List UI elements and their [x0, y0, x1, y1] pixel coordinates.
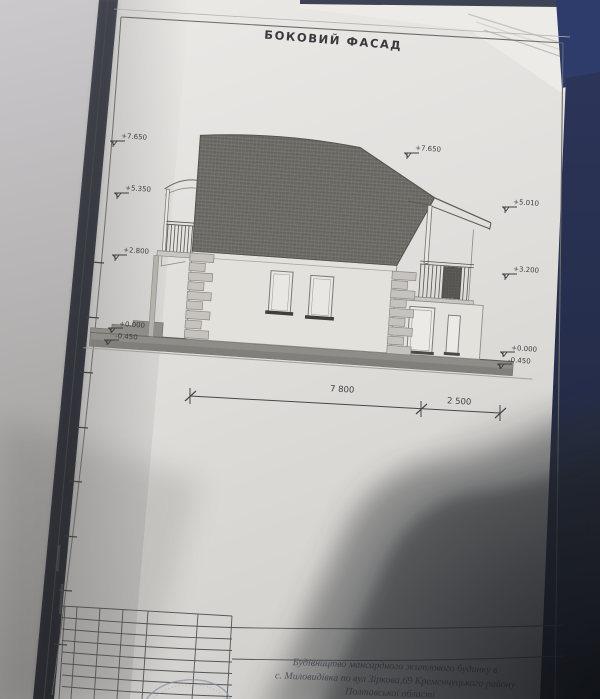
dimension-7800: 7 800	[330, 384, 355, 395]
photo-of-blueprint: БОКОВИЙ ФАСАД	[0, 0, 600, 699]
svg-text:-0.450: -0.450	[115, 332, 138, 342]
veranda-dark-panel	[442, 267, 462, 299]
dimension-2500: 2 500	[447, 396, 472, 407]
blueprint-photo-canvas: БОКОВИЙ ФАСАД	[0, 0, 600, 699]
svg-text:-0.450: -0.450	[508, 356, 531, 366]
